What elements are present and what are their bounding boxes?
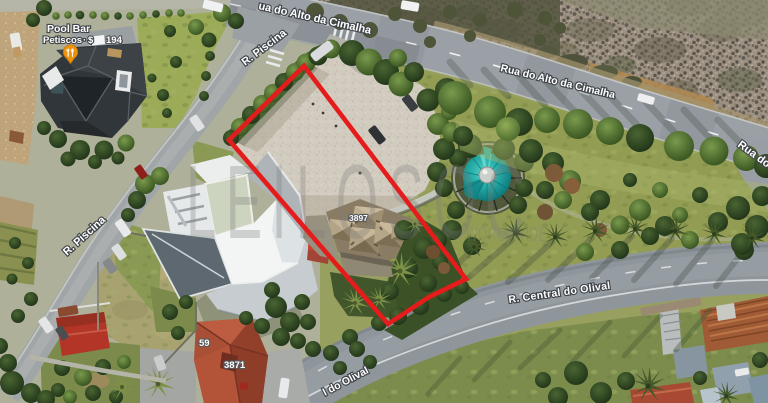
- svg-text:3897: 3897: [349, 213, 368, 223]
- svg-text:$: $: [88, 35, 94, 46]
- svg-text:·: ·: [83, 35, 86, 46]
- svg-text:Pool Bar: Pool Bar: [47, 23, 90, 35]
- svg-text:3871: 3871: [224, 360, 246, 371]
- svg-text:WORLDWIDE: WORLDWIDE: [466, 224, 547, 246]
- svg-text:194: 194: [106, 35, 123, 46]
- svg-text:Petiscos: Petiscos: [43, 35, 82, 46]
- svg-text:59: 59: [199, 338, 210, 349]
